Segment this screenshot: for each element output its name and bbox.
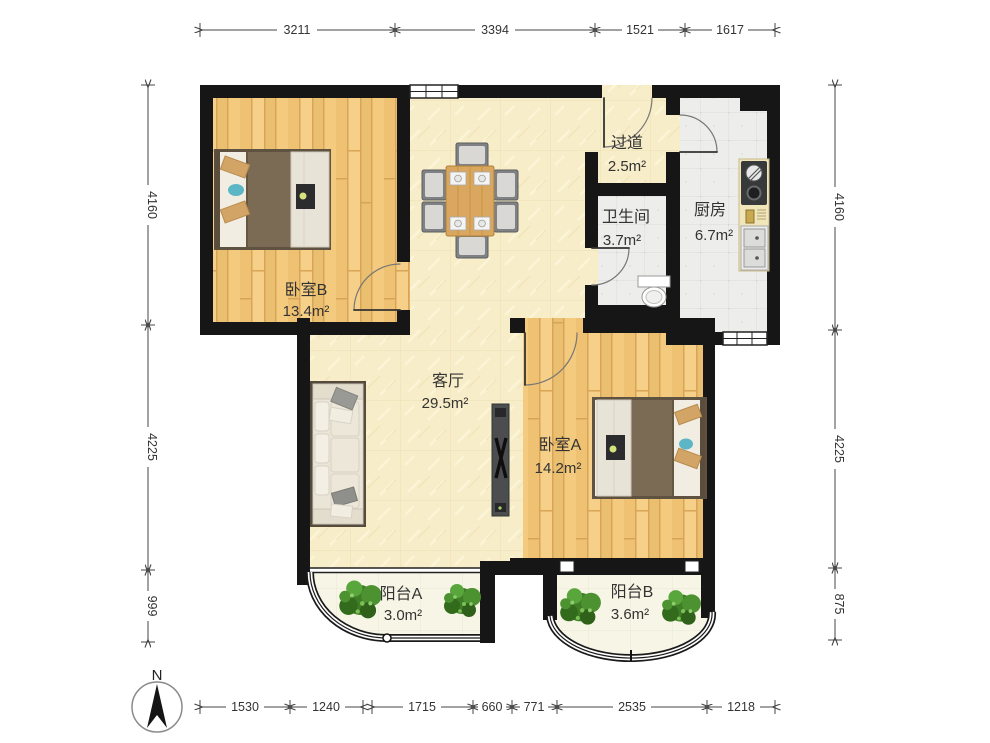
floor-plan-page: 卧室B 13.4m² 过道 2.5m² 卫生间 3.7m² 厨房 6.7m² 客… (0, 0, 990, 743)
balcony-a-area: 3.0m² (384, 607, 422, 624)
bedroom-a-balcony-door (560, 561, 574, 572)
dim-right-2: 875 (832, 594, 846, 615)
dim-bottom-5: 2535 (618, 700, 646, 714)
hallway-area: 2.5m² (608, 158, 646, 175)
dim-bottom-1: 1240 (312, 700, 340, 714)
dim-right-0: 4160 (832, 193, 846, 221)
balcony-b-area: 3.6m² (611, 606, 649, 623)
dim-bottom-6: 1218 (727, 700, 755, 714)
kitchen-counter (739, 159, 769, 271)
living-balcony-window (310, 568, 480, 573)
utensil-holder (746, 210, 754, 223)
dim-bottom-4: 771 (524, 700, 545, 714)
dim-left-2: 999 (145, 596, 159, 617)
bedroom-b-area: 13.4m² (283, 303, 330, 320)
bedroom-a-area: 14.2m² (535, 460, 582, 477)
compass: N (132, 667, 182, 732)
dim-bottom-2: 1715 (408, 700, 436, 714)
tv-stand (492, 404, 509, 516)
bathroom-name: 卫生间 (602, 208, 650, 226)
kitchen-area: 6.7m² (695, 227, 733, 244)
bedroom-a-balcony-window (685, 561, 699, 572)
bathroom-area: 3.7m² (603, 232, 641, 249)
dim-top-2: 1521 (626, 23, 654, 37)
bedroom-b-bed (214, 149, 331, 250)
living-area: 29.5m² (422, 395, 469, 412)
kitchen-window (723, 332, 767, 345)
bedroom-b-name: 卧室B (285, 281, 328, 299)
sofa (310, 381, 366, 527)
bedroom-a-bed (592, 397, 707, 499)
hallway-name: 过道 (611, 134, 643, 152)
living-name: 客厅 (432, 372, 464, 390)
balcony-a-name: 阳台A (380, 585, 423, 603)
floor-plan-drawing: 卧室B 13.4m² 过道 2.5m² 卫生间 3.7m² 厨房 6.7m² 客… (0, 0, 990, 743)
balcony-b-name: 阳台B (611, 583, 654, 601)
bedroom-a-name: 卧室A (539, 436, 582, 454)
dim-bottom-3: 660 (482, 700, 503, 714)
dim-left-1: 4225 (145, 433, 159, 461)
dining-window (410, 85, 458, 98)
dim-top-0: 3211 (284, 23, 311, 37)
dim-right-1: 4225 (832, 435, 846, 463)
dim-top-3: 1617 (716, 23, 744, 37)
dim-top-1: 3394 (481, 23, 509, 37)
kitchen-name: 厨房 (694, 201, 726, 219)
dim-bottom-0: 1530 (231, 700, 259, 714)
dim-left-0: 4160 (145, 191, 159, 219)
